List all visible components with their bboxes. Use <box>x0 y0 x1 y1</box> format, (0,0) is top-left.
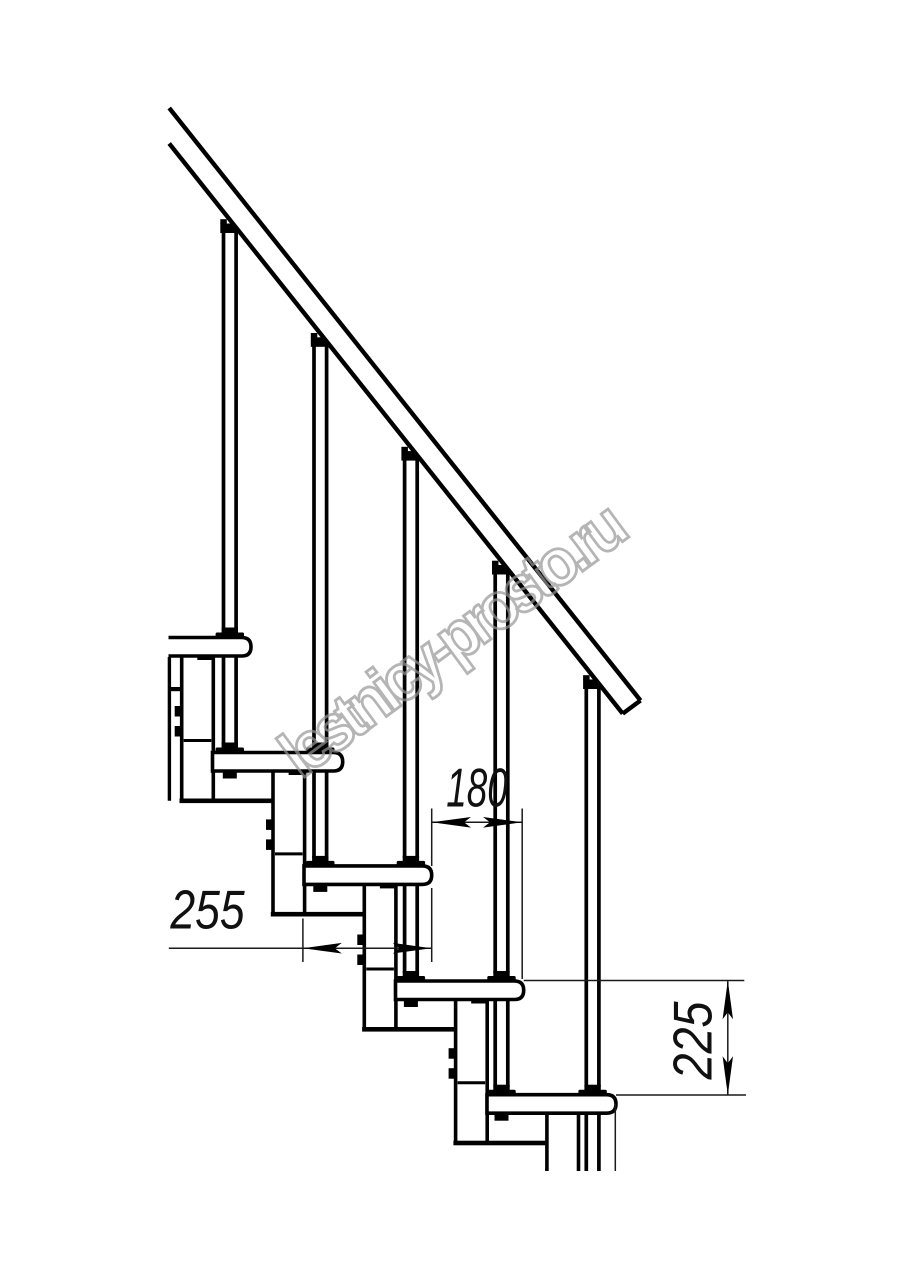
svg-text:255: 255 <box>169 879 244 941</box>
svg-text:180: 180 <box>446 757 507 818</box>
svg-text:225: 225 <box>662 1001 723 1080</box>
